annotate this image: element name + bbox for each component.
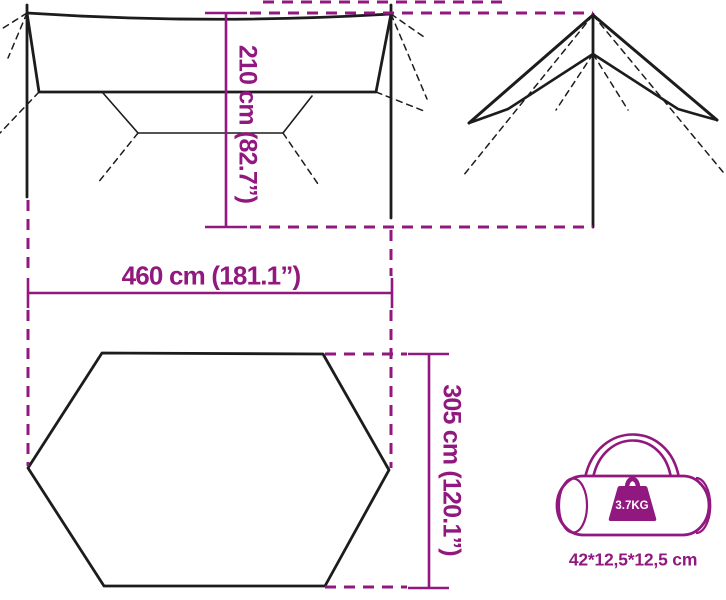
front-view	[0, 5, 427, 218]
tarp-dimension-diagram: 210 cm (82.7”) 460 cm (181.1”) 305 cm (1…	[0, 0, 726, 600]
carry-bag-icon	[557, 435, 710, 536]
height-dimension-label: 210 cm (82.7”)	[233, 45, 262, 203]
tarp-canopy-outline	[27, 13, 391, 92]
depth-dimension-label: 305 cm (120.1”)	[437, 384, 466, 555]
canopy-inner-edge-left	[469, 54, 593, 123]
side-view	[463, 14, 723, 227]
bag-handle-inner	[593, 441, 671, 479]
width-dimension-label: 460 cm (181.1”)	[122, 261, 301, 292]
canopy-inner-edge-right	[593, 54, 717, 120]
top-view-hexagon	[28, 353, 389, 586]
bag-size-label: 42*12,5*12,5 cm	[569, 550, 697, 571]
bag-weight-label: 3.7KG	[615, 500, 648, 512]
hexagon-outline	[28, 353, 389, 586]
canopy-back-edge	[103, 93, 312, 133]
